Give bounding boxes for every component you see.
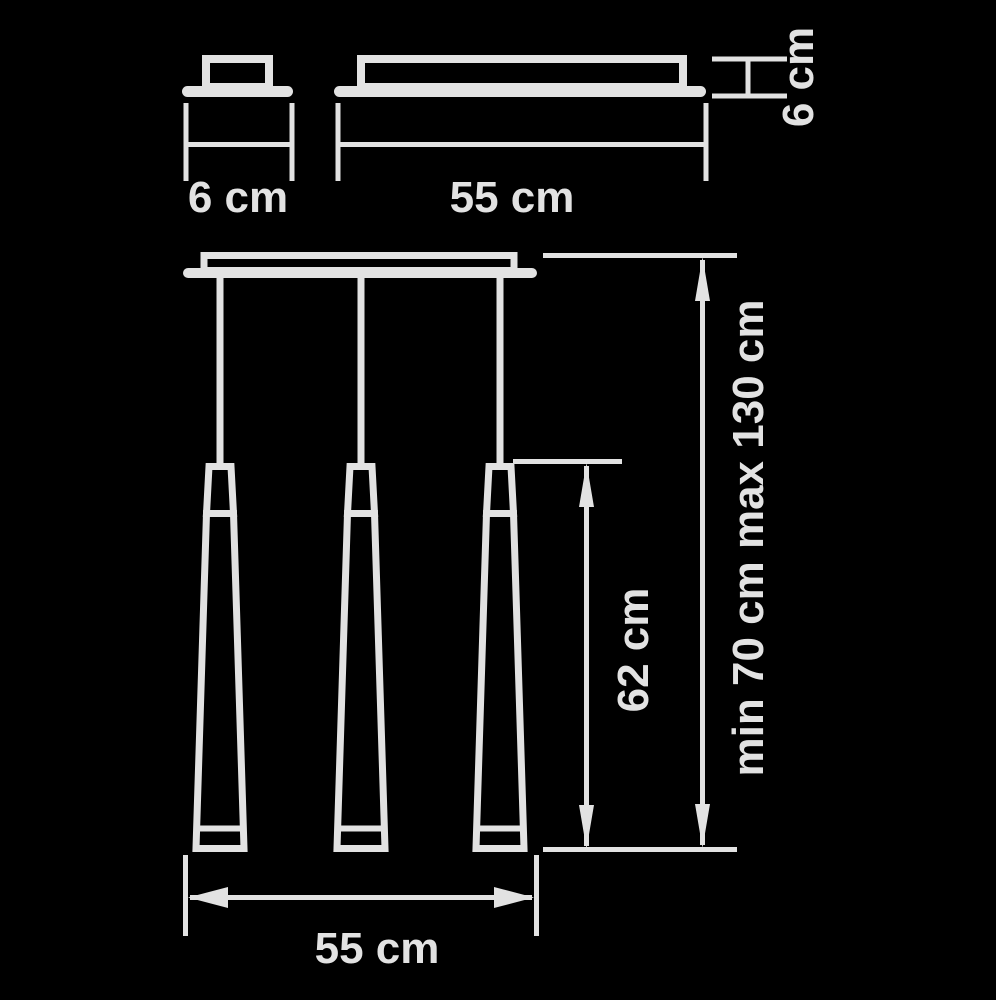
- dimension-diagram: 6 cm 55 cm 6 cm: [0, 0, 996, 1000]
- diagram-canvas: 6 cm 55 cm 6 cm: [0, 0, 996, 1000]
- pendant-front-view: [183, 256, 537, 849]
- bottom-arrow-right: [494, 887, 534, 908]
- canopy-box-outline: [206, 59, 269, 87]
- bottom-length-label: 55 cm: [315, 924, 440, 973]
- bar-height-dimension: 6 cm: [712, 27, 823, 127]
- pendant-2-cone-body: [337, 514, 385, 849]
- canopy-width-label: 6 cm: [188, 173, 288, 222]
- bar-length-label: 55 cm: [450, 173, 575, 222]
- cone-height-arrow-down: [579, 805, 594, 849]
- suspension-arrow-up: [695, 257, 710, 301]
- front-base-plate: [183, 268, 537, 278]
- pendant-2: [337, 277, 385, 849]
- bar-side-view: 55 cm: [334, 59, 708, 222]
- canopy-base-plate: [182, 86, 293, 97]
- canopy-side-view: 6 cm: [182, 59, 294, 222]
- bar-box-outline: [361, 59, 683, 87]
- cone-height-arrow-up: [579, 463, 594, 507]
- pendant-3-cone-body: [476, 514, 524, 849]
- suspension-height-dimension: min 70 cm max 130 cm: [543, 256, 773, 850]
- pendant-1-cap: [207, 467, 234, 514]
- bar-base-plate: [334, 86, 706, 97]
- suspension-arrow-down: [695, 804, 710, 848]
- bottom-arrow-left: [188, 887, 228, 908]
- bar-height-label: 6 cm: [774, 27, 823, 127]
- cone-height-label: 62 cm: [609, 588, 658, 713]
- pendant-1-cone-body: [196, 514, 244, 849]
- pendant-1: [196, 277, 244, 849]
- bottom-length-dimension: 55 cm: [186, 855, 537, 973]
- suspension-height-label: min 70 cm max 130 cm: [724, 300, 773, 777]
- pendant-3-cap: [487, 467, 514, 514]
- pendant-2-cap: [348, 467, 375, 514]
- cone-height-dimension: 62 cm: [513, 462, 658, 850]
- pendant-3: [476, 277, 524, 849]
